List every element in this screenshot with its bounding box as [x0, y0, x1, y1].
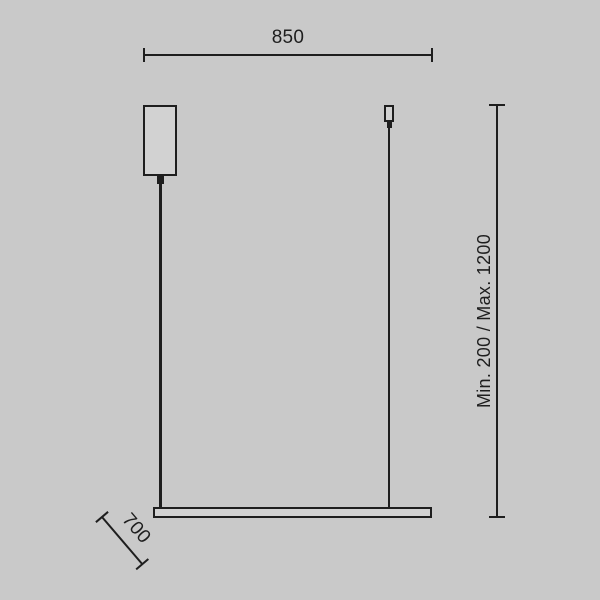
width-dimension-line [144, 54, 432, 56]
depth-dimension: 700 [102, 517, 142, 564]
cable-connector [384, 105, 394, 122]
connector-stem [387, 121, 392, 128]
height-dimension-tick-top [489, 104, 505, 106]
width-dimension-tick-left [143, 48, 145, 62]
width-dimension-label: 850 [144, 28, 432, 47]
width-dimension-tick-right [431, 48, 433, 62]
dimension-diagram: 850 Min. 200 / Max. 1200 700 [0, 0, 600, 600]
canopy-stem [157, 175, 164, 184]
height-dimension-label: Min. 200 / Max. 1200 [475, 234, 493, 408]
ceiling-canopy [143, 105, 177, 176]
lamp-bar [153, 507, 432, 518]
height-dimension-tick-bottom [489, 516, 505, 518]
suspension-cable-right [388, 128, 390, 507]
suspension-cable-left [159, 184, 162, 507]
height-dimension-line [496, 105, 498, 518]
